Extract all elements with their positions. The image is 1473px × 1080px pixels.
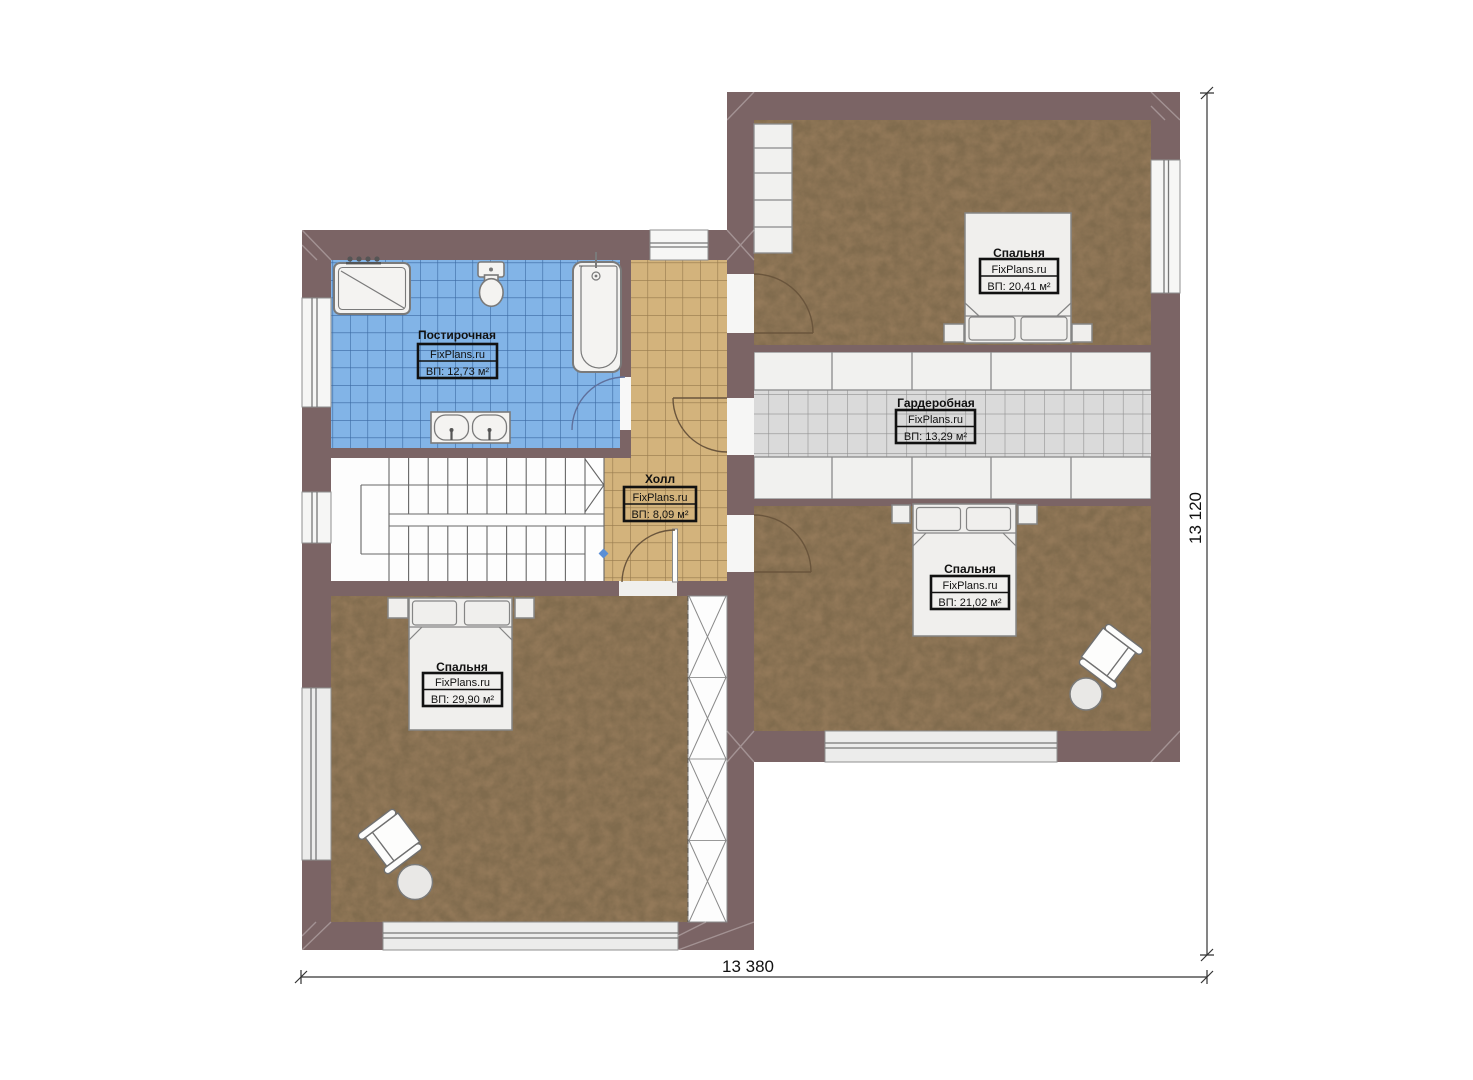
svg-text:FixPlans.ru: FixPlans.ru bbox=[991, 264, 1046, 276]
svg-text:FixPlans.ru: FixPlans.ru bbox=[632, 492, 687, 504]
svg-text:FixPlans.ru: FixPlans.ru bbox=[908, 414, 963, 426]
svg-text:ВП: 29,90 м²: ВП: 29,90 м² bbox=[431, 694, 495, 706]
svg-text:ВП: 21,02 м²: ВП: 21,02 м² bbox=[938, 597, 1002, 609]
svg-text:ВП: 12,73 м²: ВП: 12,73 м² bbox=[426, 366, 490, 378]
svg-text:13 120: 13 120 bbox=[1186, 492, 1205, 544]
svg-text:ВП: 8,09 м²: ВП: 8,09 м² bbox=[631, 509, 688, 521]
svg-text:ВП: 13,29 м²: ВП: 13,29 м² bbox=[904, 431, 968, 443]
svg-text:FixPlans.ru: FixPlans.ru bbox=[435, 677, 490, 689]
svg-text:Гардеробная: Гардеробная bbox=[897, 396, 975, 410]
svg-text:13 380: 13 380 bbox=[722, 957, 774, 976]
svg-text:Холл: Холл bbox=[645, 472, 675, 486]
svg-text:FixPlans.ru: FixPlans.ru bbox=[430, 349, 485, 361]
svg-text:Спальня: Спальня bbox=[944, 562, 996, 576]
svg-text:FixPlans.ru: FixPlans.ru bbox=[942, 580, 997, 592]
svg-text:ВП: 20,41 м²: ВП: 20,41 м² bbox=[987, 281, 1051, 293]
svg-text:Постирочная: Постирочная bbox=[418, 328, 496, 342]
